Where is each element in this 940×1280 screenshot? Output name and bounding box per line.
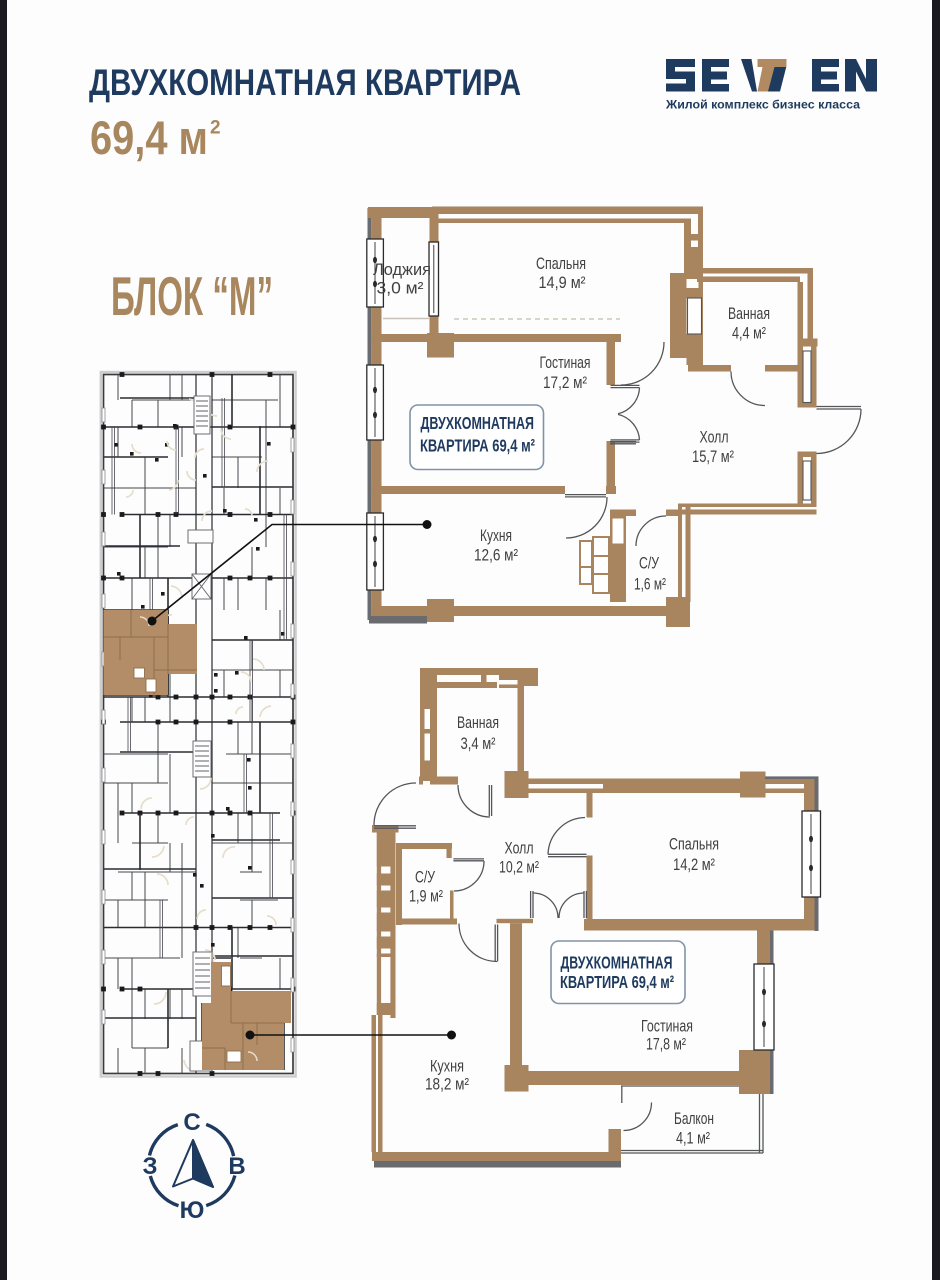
- svg-text:10,2 м²: 10,2 м²: [499, 858, 539, 877]
- svg-text:Спальня: Спальня: [536, 254, 586, 273]
- svg-text:ДВУХКОМНАТНАЯ КВАРТИРА: ДВУХКОМНАТНАЯ КВАРТИРА: [89, 62, 521, 103]
- svg-text:Ванная: Ванная: [457, 713, 499, 732]
- svg-text:КВАРТИРА 69,4 м²: КВАРТИРА 69,4 м²: [420, 436, 535, 456]
- svg-text:Кухня: Кухня: [480, 526, 512, 545]
- svg-text:3,4 м²: 3,4 м²: [461, 734, 496, 753]
- svg-text:69,4 м: 69,4 м: [90, 111, 208, 164]
- svg-text:Лоджия: Лоджия: [373, 260, 431, 279]
- svg-text:ДВУХКОМНАТНАЯ: ДВУХКОМНАТНАЯ: [421, 413, 535, 433]
- svg-text:18,2 м²: 18,2 м²: [425, 1075, 469, 1094]
- svg-text:С/У: С/У: [639, 554, 659, 573]
- svg-text:КВАРТИРА 69,4 м²: КВАРТИРА 69,4 м²: [560, 972, 674, 992]
- svg-text:Гостиная: Гостиная: [641, 1017, 693, 1036]
- svg-text:Холл: Холл: [505, 839, 534, 858]
- svg-text:14,9 м²: 14,9 м²: [539, 273, 586, 292]
- svg-text:17,2 м²: 17,2 м²: [543, 373, 587, 392]
- svg-text:С: С: [183, 1109, 200, 1136]
- svg-text:Кухня: Кухня: [430, 1057, 464, 1076]
- svg-text:4,1 м²: 4,1 м²: [676, 1129, 710, 1148]
- svg-text:ДВУХКОМНАТНАЯ: ДВУХКОМНАТНАЯ: [561, 953, 673, 973]
- svg-text:3,0 м²: 3,0 м²: [377, 279, 424, 298]
- svg-text:2: 2: [210, 118, 221, 139]
- svg-text:15,7 м²: 15,7 м²: [692, 447, 734, 466]
- svg-text:Балкон: Балкон: [674, 1109, 714, 1128]
- svg-text:4,4 м²: 4,4 м²: [732, 324, 766, 343]
- svg-text:С/У: С/У: [415, 868, 435, 887]
- svg-text:Ванная: Ванная: [728, 304, 770, 323]
- svg-text:Холл: Холл: [700, 428, 729, 447]
- svg-text:В: В: [228, 1153, 245, 1180]
- svg-text:17,8 м²: 17,8 м²: [646, 1035, 686, 1054]
- svg-text:Ю: Ю: [180, 1197, 205, 1224]
- svg-text:Жилой комплекс бизнес класса: Жилой комплекс бизнес класса: [665, 98, 860, 112]
- svg-text:БЛОК “М”: БЛОК “М”: [111, 265, 273, 327]
- svg-text:14,2 м²: 14,2 м²: [673, 855, 715, 874]
- svg-text:Гостиная: Гостиная: [540, 353, 591, 372]
- svg-text:1,6 м²: 1,6 м²: [634, 575, 666, 594]
- svg-text:Спальня: Спальня: [669, 835, 719, 854]
- svg-text:З: З: [142, 1153, 157, 1180]
- svg-text:12,6 м²: 12,6 м²: [474, 546, 518, 565]
- svg-text:1,9 м²: 1,9 м²: [409, 887, 443, 906]
